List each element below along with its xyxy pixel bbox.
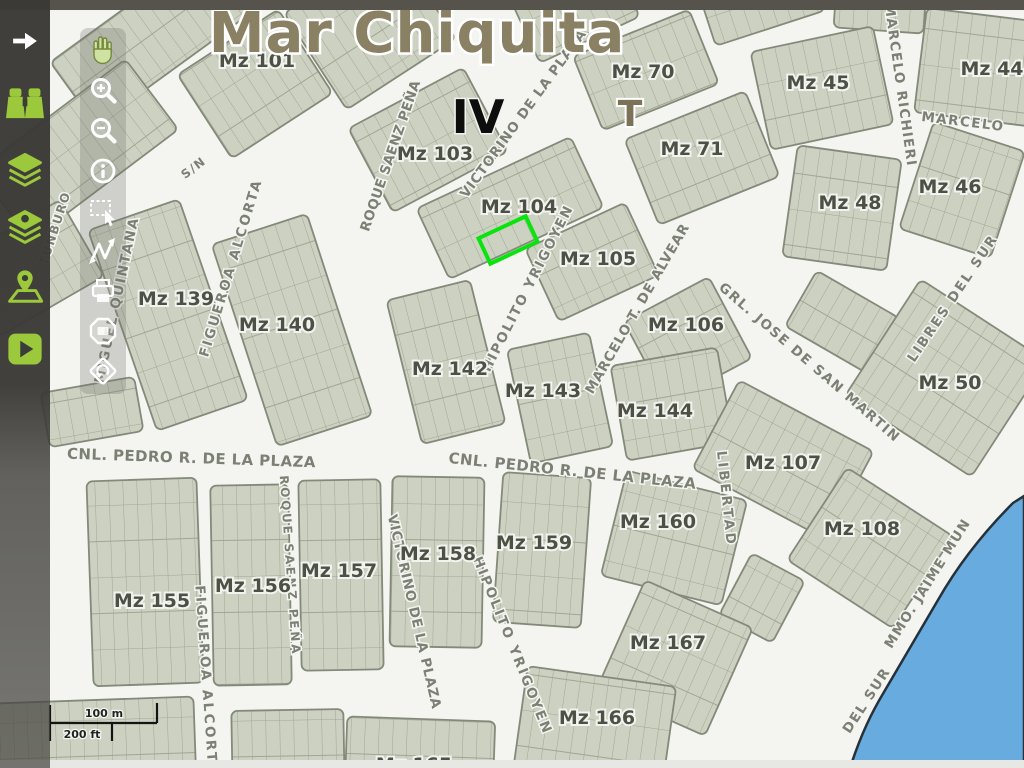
- block-label: Mz 158: [400, 543, 476, 565]
- block-label: Mz 107: [745, 452, 821, 474]
- block-label: Mz 157: [301, 560, 377, 582]
- select-area-icon[interactable]: [80, 191, 126, 231]
- map-location-icon[interactable]: [6, 268, 44, 306]
- block-label: Mz 104: [481, 196, 557, 218]
- block-label: Mz 143: [505, 380, 581, 402]
- print-icon[interactable]: [80, 271, 126, 311]
- block-label: Mz 106: [648, 314, 724, 336]
- map-toolbar: [80, 28, 126, 394]
- info-icon[interactable]: [80, 151, 126, 191]
- expand-arrow-icon[interactable]: [6, 22, 44, 60]
- block-label: Mz 105: [560, 248, 636, 270]
- scale-imperial-label: 200 ft: [64, 728, 101, 741]
- sidebar-panel: [0, 0, 50, 768]
- map-area[interactable]: S/N MIGUEL QUINTANA FIGUEROA ALCORTA ROQ…: [0, 0, 1024, 768]
- pan-hand-icon[interactable]: [80, 31, 126, 71]
- map-block[interactable]: [86, 478, 203, 687]
- block-label: Mz 50: [918, 372, 981, 394]
- block-label: Mz 140: [239, 314, 315, 336]
- snapshot-icon[interactable]: [80, 311, 126, 351]
- block-label: Mz 144: [617, 400, 693, 422]
- block-label: Mz 160: [620, 511, 696, 533]
- block-label: Mz 167: [630, 632, 706, 654]
- previous-view-icon[interactable]: [80, 351, 126, 391]
- block-label: Mz 156: [215, 575, 291, 597]
- zoom-out-icon[interactable]: [80, 111, 126, 151]
- binoculars-icon[interactable]: [6, 86, 44, 124]
- layers-icon[interactable]: [6, 152, 44, 190]
- block-label: Mz 155: [114, 590, 190, 612]
- window-bottom-edge: [0, 760, 1024, 768]
- window-top-edge: [0, 0, 1024, 10]
- block-label: Mz 46: [918, 176, 981, 198]
- zone-roman-label: IV: [452, 90, 505, 144]
- block-label: Mz 45: [786, 72, 849, 94]
- play-icon[interactable]: [6, 330, 44, 368]
- block-label: Mz 159: [496, 532, 572, 554]
- map-viewer-window: { "app": { "title": "Mar Chiquita", "zon…: [0, 0, 1024, 768]
- block-label: Mz 48: [818, 192, 881, 214]
- scale-metric-label: 100 m: [85, 707, 123, 720]
- block-label: Mz 44: [960, 58, 1023, 80]
- map-title: Mar Chiquita: [209, 1, 626, 66]
- block-label: Mz 108: [824, 518, 900, 540]
- measure-icon[interactable]: [80, 231, 126, 271]
- block-label: Mz 139: [138, 288, 214, 310]
- layers-alt-icon[interactable]: [6, 208, 44, 246]
- block-label: Mz 103: [397, 143, 473, 165]
- block-label: Mz 142: [412, 358, 488, 380]
- block-label: Mz 71: [660, 138, 723, 160]
- zoom-in-icon[interactable]: [80, 71, 126, 111]
- zone-t-label: T: [618, 94, 643, 135]
- block-label: Mz 166: [559, 707, 635, 729]
